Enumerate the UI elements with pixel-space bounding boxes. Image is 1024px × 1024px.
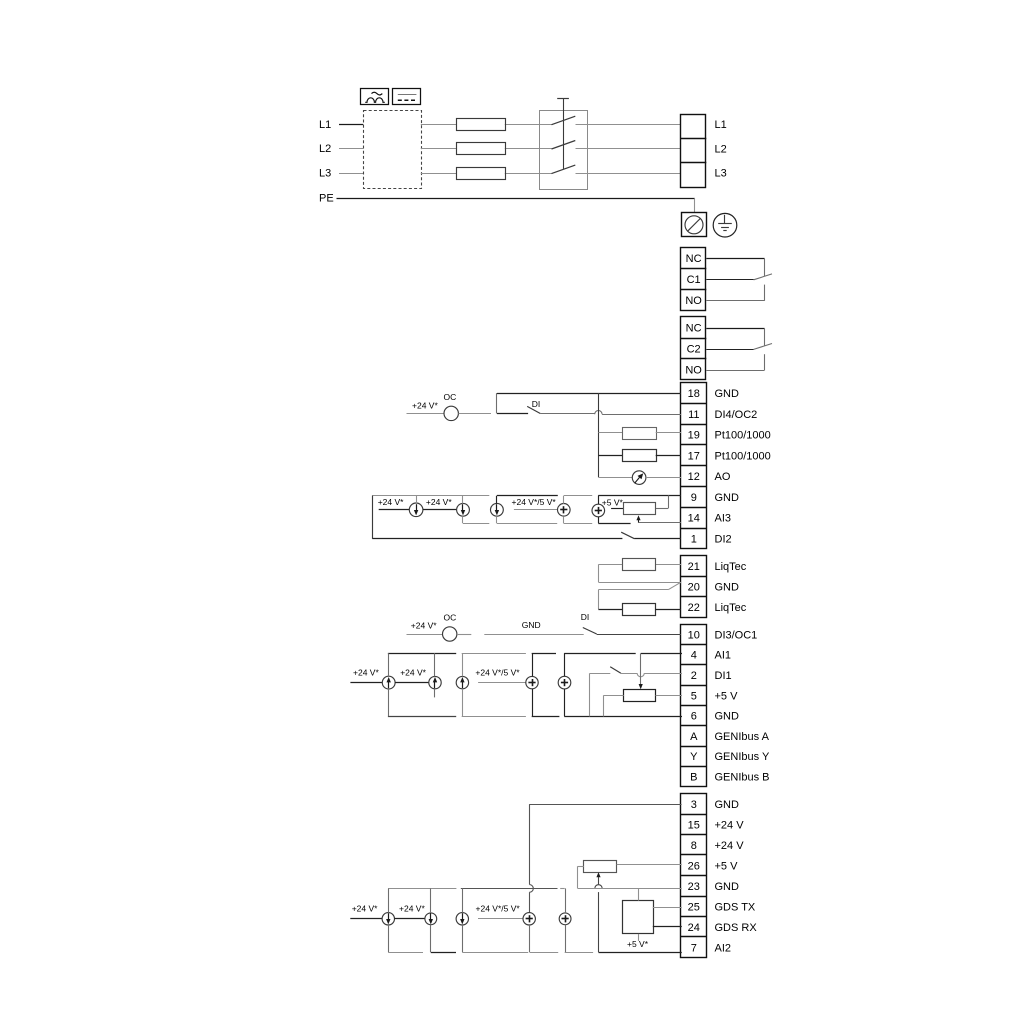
svg-text:+24 V*/5 V*: +24 V*/5 V* <box>512 497 557 507</box>
svg-text:PE: PE <box>319 192 334 204</box>
svg-text:+24 V*: +24 V* <box>353 667 379 677</box>
svg-text:L2: L2 <box>715 143 727 155</box>
svg-text:9: 9 <box>691 492 697 504</box>
svg-text:Pt100/1000: Pt100/1000 <box>715 450 771 462</box>
svg-text:26: 26 <box>688 860 700 872</box>
svg-text:NC: NC <box>686 253 702 265</box>
svg-text:20: 20 <box>688 581 700 593</box>
svg-text:+5 V*: +5 V* <box>627 939 649 949</box>
svg-text:GND: GND <box>715 492 740 504</box>
svg-text:+24 V*/5 V*: +24 V*/5 V* <box>475 667 520 677</box>
svg-text:10: 10 <box>688 629 700 641</box>
svg-text:+24 V*: +24 V* <box>399 903 425 913</box>
svg-text:LiqTec: LiqTec <box>715 561 747 573</box>
svg-text:+5 V*: +5 V* <box>602 498 624 508</box>
svg-text:+24 V*/5 V*: +24 V*/5 V* <box>476 903 521 913</box>
svg-text:GND: GND <box>715 711 740 723</box>
svg-text:GND: GND <box>522 620 541 630</box>
svg-text:L3: L3 <box>319 168 331 180</box>
svg-text:19: 19 <box>688 430 700 442</box>
svg-text:11: 11 <box>688 409 699 421</box>
svg-text:DI4/OC2: DI4/OC2 <box>715 409 758 421</box>
svg-text:AI2: AI2 <box>715 942 732 954</box>
svg-text:+5 V: +5 V <box>715 860 739 872</box>
svg-text:+24 V*: +24 V* <box>378 497 404 507</box>
svg-text:DI2: DI2 <box>715 533 732 545</box>
svg-text:22: 22 <box>688 602 700 614</box>
svg-text:25: 25 <box>688 901 700 913</box>
svg-text:NO: NO <box>685 295 702 307</box>
svg-text:4: 4 <box>691 650 697 662</box>
svg-text:24: 24 <box>688 922 700 934</box>
svg-text:Y: Y <box>690 751 698 763</box>
svg-text:B: B <box>690 771 697 783</box>
svg-text:GND: GND <box>715 799 740 811</box>
svg-text:C2: C2 <box>687 343 701 355</box>
svg-text:GENIbus A: GENIbus A <box>715 731 770 743</box>
svg-text:A: A <box>690 731 698 743</box>
svg-text:5: 5 <box>691 690 697 702</box>
svg-text:15: 15 <box>688 819 700 831</box>
svg-text:21: 21 <box>688 561 700 573</box>
svg-text:NO: NO <box>685 364 702 376</box>
svg-text:L3: L3 <box>715 167 727 179</box>
svg-text:NC: NC <box>686 322 702 334</box>
svg-text:AO: AO <box>715 471 731 483</box>
svg-text:DI1: DI1 <box>715 670 732 682</box>
svg-text:OC: OC <box>444 613 457 623</box>
svg-text:8: 8 <box>691 840 697 852</box>
svg-text:+24 V: +24 V <box>715 819 745 831</box>
svg-text:+24 V*: +24 V* <box>412 401 438 411</box>
svg-text:+24 V: +24 V <box>715 840 745 852</box>
svg-text:14: 14 <box>688 513 700 525</box>
svg-text:OC: OC <box>444 392 457 402</box>
svg-text:GDS TX: GDS TX <box>715 901 756 913</box>
svg-text:+24 V*: +24 V* <box>426 497 452 507</box>
svg-text:+24 V*: +24 V* <box>400 667 426 677</box>
svg-text:+24 V*: +24 V* <box>352 903 378 913</box>
svg-text:DI: DI <box>581 612 590 622</box>
svg-text:AI3: AI3 <box>715 513 732 525</box>
svg-text:+24 V*: +24 V* <box>411 621 437 631</box>
svg-text:GND: GND <box>715 881 740 893</box>
svg-text:+5 V: +5 V <box>715 690 739 702</box>
svg-text:LiqTec: LiqTec <box>715 602 747 614</box>
svg-text:GENIbus B: GENIbus B <box>715 771 770 783</box>
svg-text:GND: GND <box>715 388 740 400</box>
svg-text:23: 23 <box>688 881 700 893</box>
svg-text:L2: L2 <box>319 143 331 155</box>
svg-text:3: 3 <box>691 799 697 811</box>
svg-text:AI1: AI1 <box>715 650 732 662</box>
svg-text:GENIbus Y: GENIbus Y <box>715 751 770 763</box>
svg-text:L1: L1 <box>715 119 727 131</box>
svg-text:12: 12 <box>688 471 700 483</box>
svg-text:2: 2 <box>691 670 697 682</box>
svg-text:DI: DI <box>532 399 541 409</box>
svg-text:6: 6 <box>691 711 697 723</box>
svg-text:1: 1 <box>691 533 697 545</box>
svg-text:7: 7 <box>691 942 697 954</box>
svg-text:C1: C1 <box>687 274 701 286</box>
svg-text:GND: GND <box>715 581 740 593</box>
svg-text:Pt100/1000: Pt100/1000 <box>715 430 771 442</box>
svg-text:17: 17 <box>688 450 700 462</box>
svg-text:GDS RX: GDS RX <box>715 922 758 934</box>
svg-text:18: 18 <box>688 388 700 400</box>
svg-text:DI3/OC1: DI3/OC1 <box>715 629 758 641</box>
svg-text:L1: L1 <box>319 119 331 131</box>
